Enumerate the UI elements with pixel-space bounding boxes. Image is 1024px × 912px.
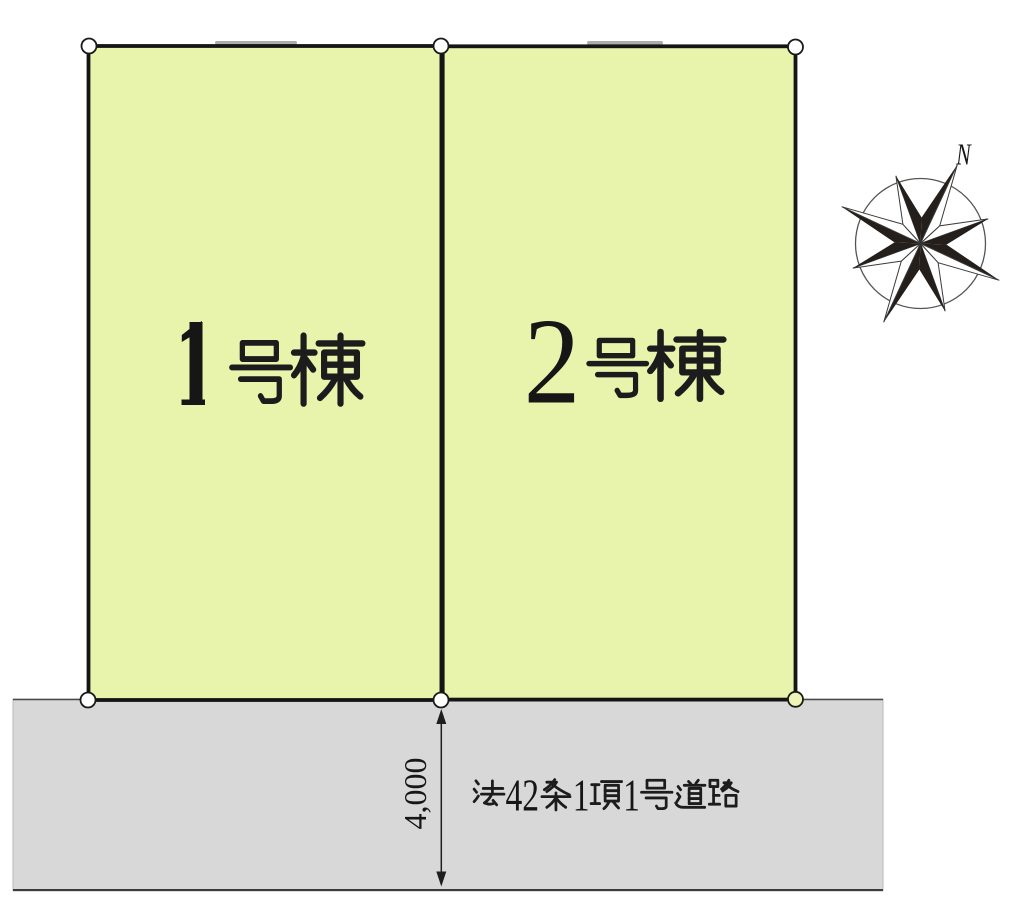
svg-text:2: 2 <box>524 293 581 429</box>
svg-text:1: 1 <box>573 769 590 820</box>
svg-text:N: N <box>955 137 972 172</box>
svg-text:4,000: 4,000 <box>397 758 433 830</box>
svg-text:2: 2 <box>522 769 539 820</box>
svg-text:4: 4 <box>506 769 523 820</box>
svg-text:1: 1 <box>623 769 640 820</box>
